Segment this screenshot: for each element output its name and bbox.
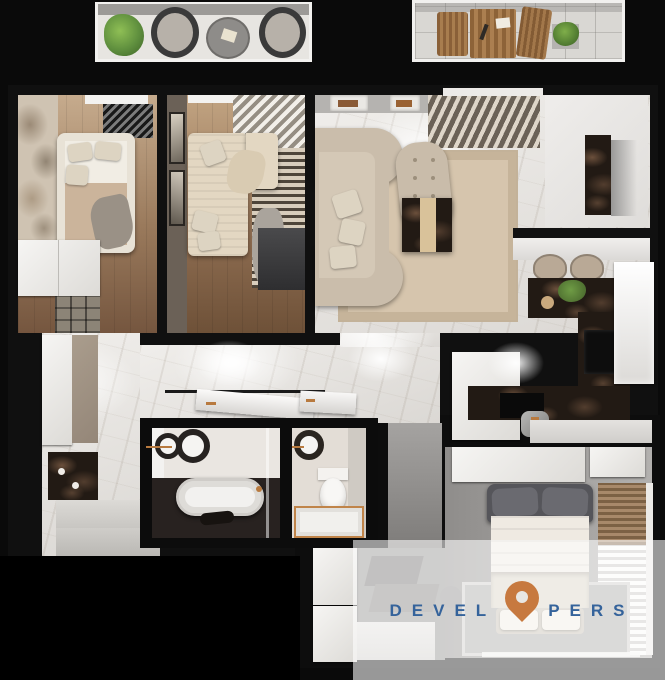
headboard-pillow	[541, 487, 588, 517]
console-knob	[58, 468, 65, 475]
shower-tray	[294, 506, 364, 538]
shelf-unit	[55, 296, 100, 333]
hall-wardrobe-white	[42, 335, 72, 445]
ceiling-light-glow	[348, 336, 414, 382]
location-pin-icon	[503, 579, 541, 635]
ottoman-buttons	[413, 158, 417, 162]
slatted-ceiling	[428, 95, 540, 148]
watermark-overlay: DEVEL PERS	[353, 540, 665, 680]
ceiling-light-glow	[196, 340, 262, 386]
wood-chair	[437, 12, 468, 56]
dresser-dark	[258, 228, 305, 290]
floral-wallpaper	[18, 95, 58, 243]
wardrobe-seam	[58, 240, 59, 296]
ceiling-light-glow	[488, 342, 544, 384]
glass-partition	[266, 428, 269, 538]
bed-pillow	[67, 141, 93, 162]
bedroom3-entry-floor	[388, 423, 442, 548]
brand-lockup: DEVEL PERS	[359, 590, 665, 630]
cabinet-shadow	[611, 140, 637, 216]
curtain-box	[85, 95, 148, 104]
ceiling-ledge	[443, 88, 543, 96]
window-blinds-wood	[598, 483, 648, 545]
console-table	[48, 452, 98, 500]
kitchen-divider-wall	[513, 228, 650, 238]
kitchen-counter-bottom	[468, 386, 630, 420]
coffee-table-runner	[420, 198, 436, 252]
plant-icon	[104, 14, 144, 56]
headboard-pillow	[491, 487, 538, 517]
floor-plan-render: DEVEL PERS	[0, 0, 665, 680]
table-paper	[496, 17, 511, 28]
bed-pillow	[94, 141, 122, 162]
door-handle	[306, 399, 315, 402]
bed-pillow	[65, 164, 88, 185]
dining-chair	[570, 254, 604, 281]
wardrobe-column	[313, 606, 357, 662]
window-plant	[338, 100, 358, 107]
brand-text-right: PERS	[548, 602, 634, 619]
dining-chair	[533, 254, 567, 281]
kitchen-lower-white-band	[530, 420, 652, 443]
wicker-chair	[259, 7, 306, 58]
dresser	[452, 447, 585, 482]
sofa-pillow	[338, 218, 366, 246]
entry-step	[56, 500, 140, 528]
bathtub	[176, 478, 264, 516]
dresser	[590, 447, 645, 477]
serving-board	[541, 296, 554, 309]
door-leaf	[299, 391, 356, 415]
wicker-chair	[151, 7, 199, 58]
window-plant	[396, 100, 412, 107]
fridge-white	[614, 262, 654, 384]
wall-art-frame	[169, 112, 185, 164]
towel-bar	[292, 446, 304, 448]
wall-art-frame	[169, 170, 185, 226]
wardrobe	[18, 240, 100, 296]
sofa-pillow	[329, 245, 357, 270]
hall-wardrobe-taupe	[72, 335, 98, 443]
round-mirror	[176, 429, 210, 463]
wardrobe-column	[313, 548, 357, 605]
brand-text-left: DEVEL	[390, 602, 497, 619]
tall-cabinet	[585, 135, 611, 215]
tub-faucet	[256, 486, 262, 492]
sofa-pillow	[197, 231, 221, 252]
door-handle	[206, 402, 216, 405]
void-lower-left	[0, 556, 300, 680]
round-mirror	[294, 430, 324, 460]
towel-bar	[146, 446, 172, 448]
